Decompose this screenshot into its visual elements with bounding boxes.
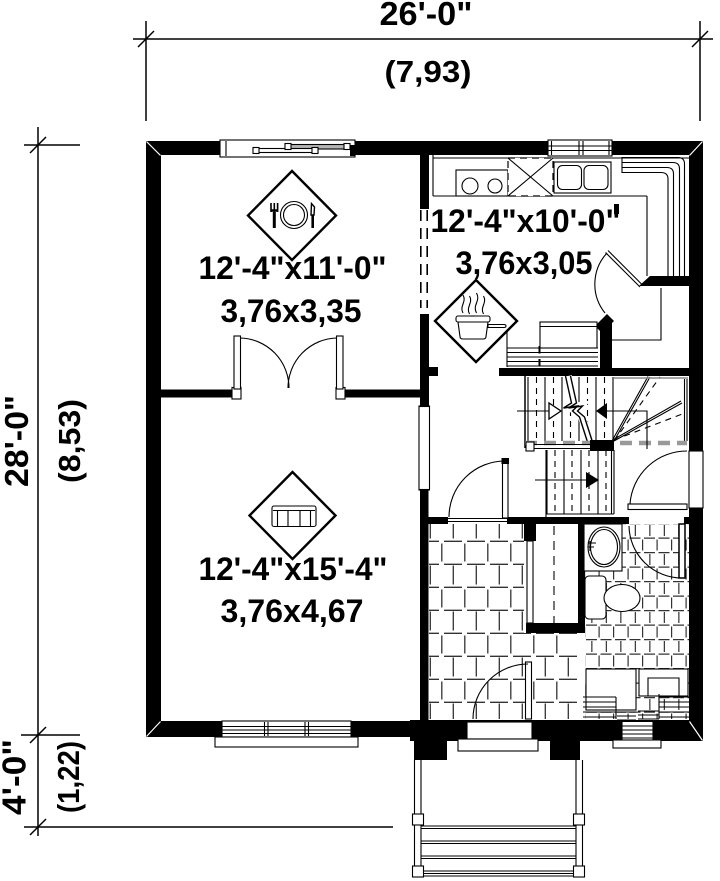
svg-text:26'-0": 26'-0" [380, 0, 473, 32]
svg-text:12'-4"x15'-4": 12'-4"x15'-4" [199, 551, 388, 587]
svg-text:3,76x3,35: 3,76x3,35 [221, 293, 362, 329]
svg-text:(7,93): (7,93) [385, 54, 472, 89]
svg-text:3,76x4,67: 3,76x4,67 [221, 593, 364, 629]
svg-text:3,76x3,05: 3,76x3,05 [456, 245, 593, 281]
svg-text:4'-0": 4'-0" [0, 739, 33, 815]
svg-text:12'-4"x11'-0": 12'-4"x11'-0" [199, 250, 387, 286]
svg-text:(8,53): (8,53) [52, 399, 87, 483]
svg-text:(1,22): (1,22) [51, 741, 86, 813]
svg-text:12'-4"x10'-0": 12'-4"x10'-0" [431, 203, 621, 239]
svg-text:28'-0": 28'-0" [0, 395, 35, 487]
